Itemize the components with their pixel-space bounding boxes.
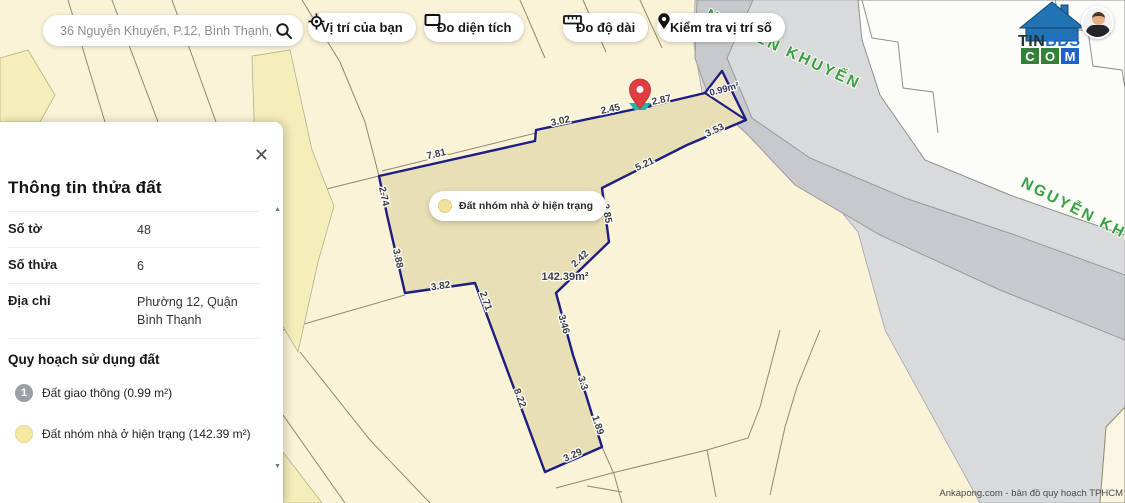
avatar-face: [1092, 12, 1105, 25]
measure-length-button[interactable]: Đo độ dài: [563, 13, 648, 42]
parcel-type-tooltip[interactable]: Đất nhóm nhà ở hiện trạng: [429, 191, 606, 221]
search-input[interactable]: [58, 23, 275, 39]
tinbds-logo[interactable]: TINBDS C O M: [1013, 1, 1093, 65]
yellow-legend-dot: [438, 199, 452, 213]
locate-icon: [308, 13, 325, 30]
planning-section-title: Quy hoạch sử dụng đất: [8, 352, 269, 367]
legend-item-traffic: 1 Đất giao thông (0.99 m²): [15, 384, 269, 402]
info-row-so-to: Số tờ 48: [8, 212, 259, 248]
panel-title: Thông tin thửa đất: [8, 178, 269, 198]
button-label: Kiểm tra vị trí số: [670, 20, 772, 35]
scroll-up-arrow[interactable]: ▲: [273, 206, 282, 213]
planning-legend: 1 Đất giao thông (0.99 m²) Đất nhóm nhà …: [8, 384, 269, 443]
traffic-land-badge: 1: [15, 384, 33, 402]
close-icon[interactable]: ✕: [250, 142, 273, 168]
pin-icon: [657, 13, 671, 30]
brand-word: TINBDS: [1018, 33, 1081, 50]
legend-item-residential: Đất nhóm nhà ở hiện trạng (142.39 m²): [15, 425, 269, 443]
legend-label: Đất nhóm nhà ở hiện trạng (142.39 m²): [42, 427, 251, 441]
info-row-so-thua: Số thửa 6: [8, 248, 259, 284]
residential-land-badge: [15, 425, 33, 443]
map-app-window: 7.813.022.452.873.535.212.852.423.463.31…: [0, 0, 1125, 503]
legend-label: Đất giao thông (0.99 m²): [42, 386, 172, 400]
search-icon[interactable]: [275, 22, 293, 40]
row-label: Số tờ: [8, 221, 137, 239]
map-pin-marker[interactable]: [629, 79, 651, 110]
parcel-info-panel: ✕ Thông tin thửa đất Số tờ 48 Số thửa 6 …: [0, 122, 283, 503]
measure-area-button[interactable]: Đo diện tích: [424, 13, 524, 42]
area-rectangle-icon: [424, 13, 441, 27]
button-label: Đo diện tích: [437, 20, 511, 35]
my-location-button[interactable]: Vị trí của bạn: [308, 13, 416, 42]
parcel-area-label: 142.39m²: [541, 271, 588, 283]
map-credit: Ankapong.com - bản đồ quy hoạch TPHCM: [939, 488, 1123, 499]
scroll-down-arrow[interactable]: ▼: [273, 463, 282, 470]
avatar-body: [1086, 25, 1110, 39]
row-label: Địa chỉ: [8, 293, 137, 329]
row-value: Phường 12, Quận Bình Thạnh: [137, 293, 259, 329]
row-label: Số thửa: [8, 257, 137, 275]
button-label: Đo độ dài: [576, 20, 635, 35]
user-avatar[interactable]: [1081, 6, 1114, 39]
row-value: 6: [137, 257, 259, 275]
ruler-icon: [563, 13, 582, 26]
info-row-dia-chi: Địa chỉ Phường 12, Quận Bình Thạnh: [8, 284, 259, 338]
brand-o: O: [1045, 49, 1055, 64]
parcel-type-label: Đất nhóm nhà ở hiện trạng: [459, 200, 593, 212]
row-value: 48: [137, 221, 259, 239]
search-bar[interactable]: [43, 15, 303, 46]
brand-m: M: [1065, 49, 1076, 64]
button-label: Vị trí của bạn: [321, 20, 403, 35]
check-parcel-location-button[interactable]: Kiểm tra vị trí số: [657, 13, 785, 42]
brand-c: C: [1025, 49, 1035, 64]
